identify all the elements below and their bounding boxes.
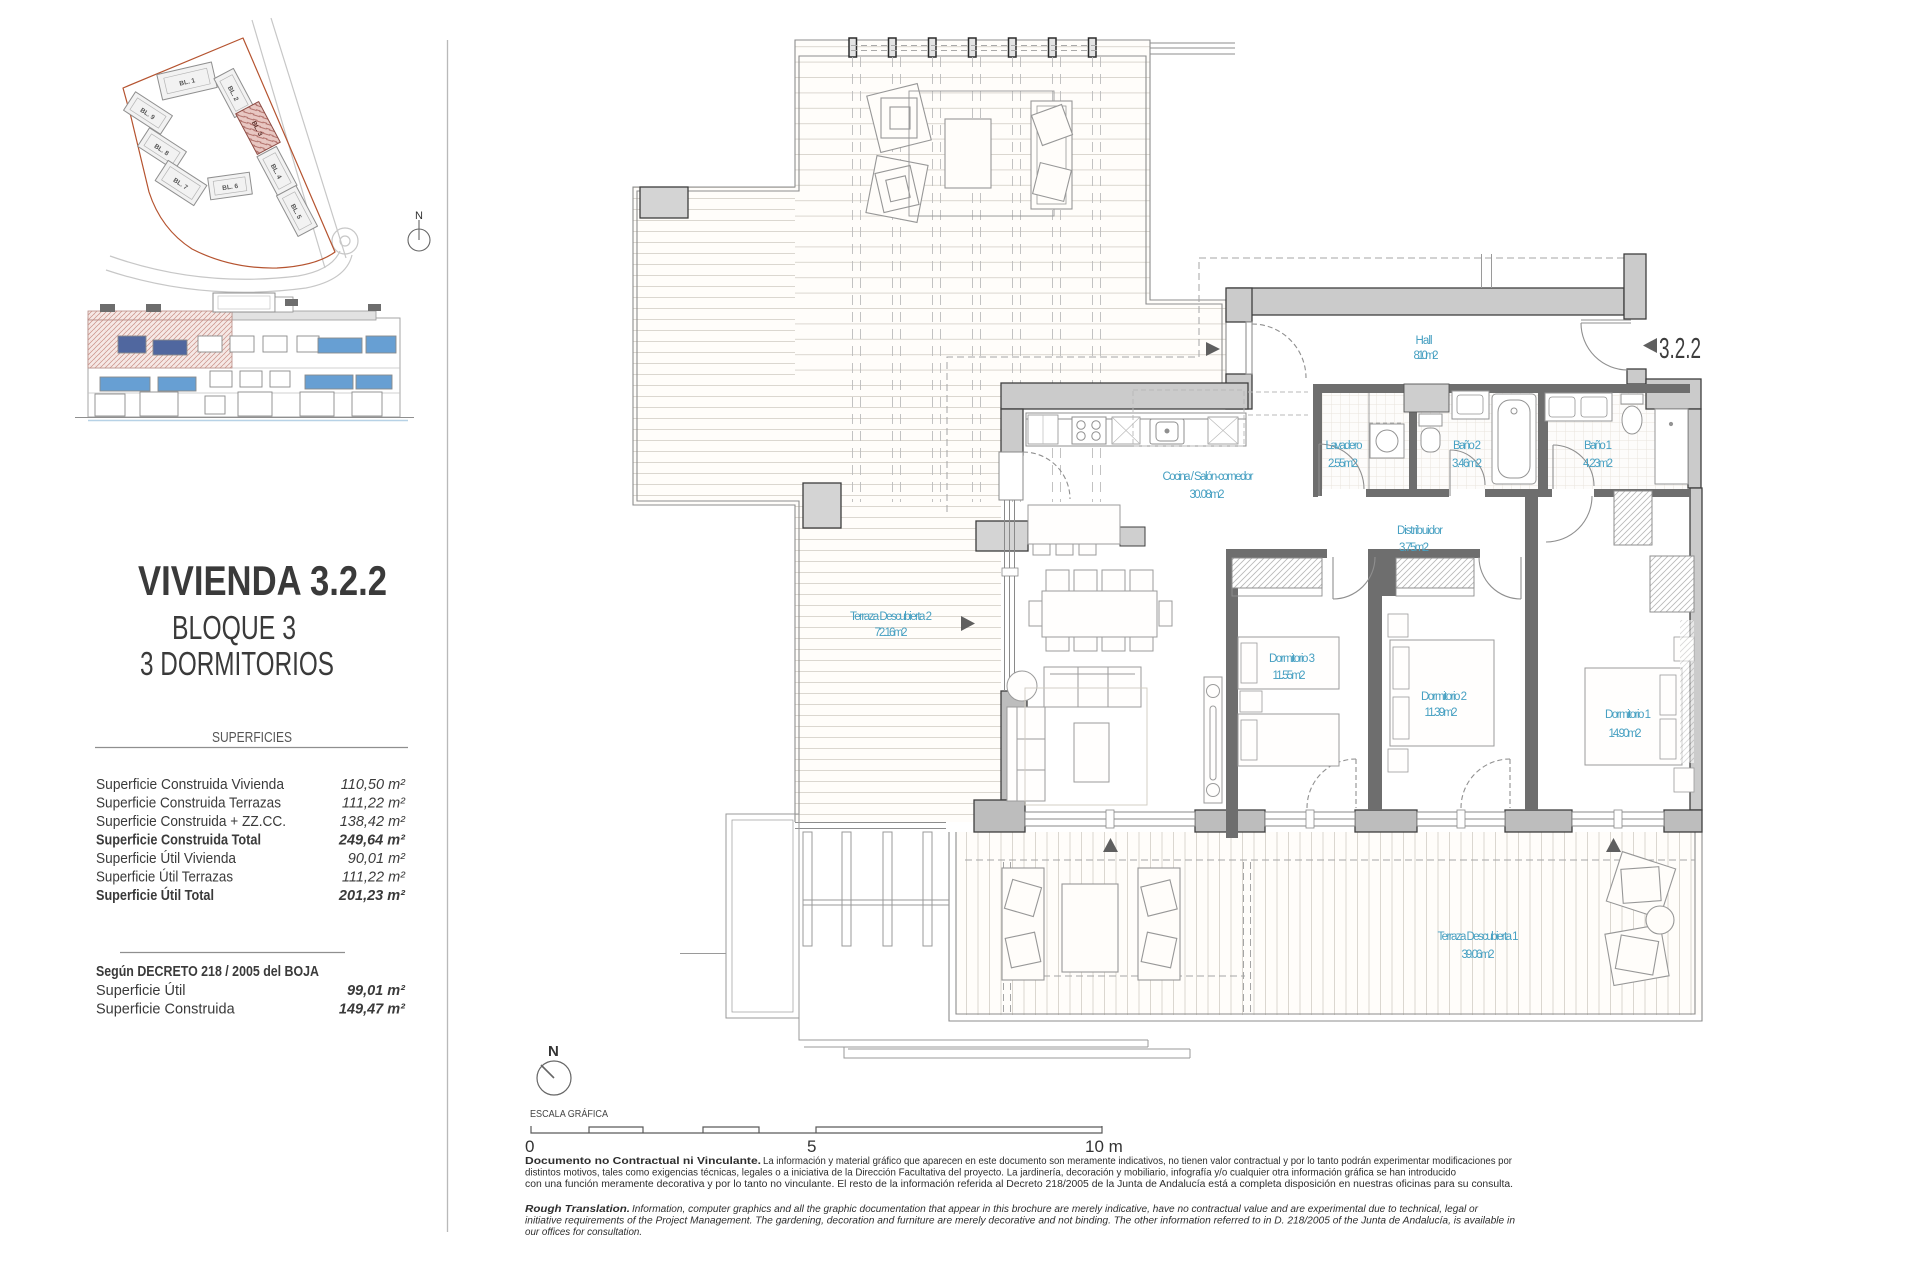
svg-text:Superficie Útil Vivienda: Superficie Útil Vivienda: [96, 850, 237, 867]
svg-text:Terraza Descubierta 2: Terraza Descubierta 2: [850, 611, 932, 623]
svg-text:N: N: [548, 1043, 559, 1060]
svg-text:La información y material gráf: La información y material gráfico que ap…: [763, 1156, 1513, 1167]
svg-text:Baño 1: Baño 1: [1584, 440, 1612, 452]
svg-text:3.2.2: 3.2.2: [1659, 333, 1701, 365]
svg-text:Dormitorio 1: Dormitorio 1: [1605, 709, 1651, 721]
svg-text:39.06m2: 39.06m2: [1462, 949, 1495, 961]
svg-text:149,47 m²: 149,47 m²: [339, 1002, 406, 1018]
svg-text:Terraza Descubierta 1: Terraza Descubierta 1: [1438, 931, 1519, 943]
svg-text:11.39m2: 11.39m2: [1425, 707, 1458, 719]
svg-text:Lavadero: Lavadero: [1326, 440, 1363, 452]
svg-text:5: 5: [807, 1137, 816, 1156]
svg-text:111,22 m²: 111,22 m²: [342, 870, 406, 886]
svg-text:138,42 m²: 138,42 m²: [340, 814, 406, 830]
svg-text:initiative requirements of the: initiative requirements of the Project M…: [525, 1216, 1515, 1227]
svg-text:Superficie Construida Total: Superficie Construida Total: [96, 833, 261, 849]
svg-text:Rough Translation.: Rough Translation.: [525, 1204, 630, 1215]
svg-text:8.10m2: 8.10m2: [1414, 350, 1439, 362]
svg-text:our offices for consultation.: our offices for consultation.: [525, 1227, 642, 1238]
svg-text:N: N: [415, 210, 423, 222]
svg-text:Superficie Construida: Superficie Construida: [96, 1002, 236, 1018]
svg-text:30.08m2: 30.08m2: [1190, 489, 1225, 501]
svg-text:Baño 2: Baño 2: [1453, 440, 1481, 452]
svg-text:110,50 m²: 110,50 m²: [341, 777, 406, 793]
svg-text:4.23m2: 4.23m2: [1583, 458, 1613, 470]
svg-text:con una función meramente deco: con una función meramente decorativa y p…: [525, 1179, 1513, 1190]
svg-text:11.55m2: 11.55m2: [1273, 670, 1306, 682]
svg-text:Superficie Construida Terrazas: Superficie Construida Terrazas: [96, 796, 281, 812]
svg-text:3 DORMITORIOS: 3 DORMITORIOS: [140, 645, 334, 682]
svg-text:Distribuidor: Distribuidor: [1397, 525, 1443, 537]
svg-text:90,01 m²: 90,01 m²: [348, 851, 406, 867]
svg-text:ESCALA GRÁFICA: ESCALA GRÁFICA: [530, 1107, 608, 1120]
svg-text:Dormitorio 2: Dormitorio 2: [1421, 691, 1467, 703]
svg-text:111,22 m²: 111,22 m²: [342, 796, 406, 812]
svg-text:Information, computer graphics: Information, computer graphics and all t…: [632, 1204, 1479, 1215]
svg-text:99,01 m²: 99,01 m²: [347, 983, 406, 999]
svg-text:VIVIENDA 3.2.2: VIVIENDA 3.2.2: [138, 557, 387, 604]
svg-text:Superficie Construida Vivienda: Superficie Construida Vivienda: [96, 777, 285, 793]
svg-text:3.46m2: 3.46m2: [1452, 458, 1482, 470]
svg-text:Superficie Útil: Superficie Útil: [96, 982, 185, 999]
svg-text:249,64 m²: 249,64 m²: [338, 833, 406, 849]
svg-text:Superficie Útil Total: Superficie Útil Total: [96, 886, 214, 904]
svg-text:10 m: 10 m: [1085, 1137, 1123, 1156]
svg-text:Superficie Construida + ZZ.CC.: Superficie Construida + ZZ.CC.: [96, 814, 286, 830]
svg-text:BLOQUE 3: BLOQUE 3: [172, 609, 296, 646]
svg-text:Según DECRETO 218 / 2005 del B: Según DECRETO 218 / 2005 del BOJA: [96, 964, 319, 980]
svg-text:SUPERFICIES: SUPERFICIES: [212, 729, 292, 746]
svg-text:Documento no Contractual ni Vi: Documento no Contractual ni Vinculante.: [525, 1156, 761, 1167]
svg-text:201,23 m²: 201,23 m²: [338, 888, 406, 904]
svg-text:3.75m2: 3.75m2: [1399, 542, 1429, 554]
svg-text:Hall: Hall: [1416, 335, 1433, 347]
svg-text:0: 0: [525, 1137, 534, 1156]
svg-text:Dormitorio 3: Dormitorio 3: [1269, 653, 1315, 665]
svg-text:2.55m2: 2.55m2: [1328, 458, 1358, 470]
svg-text:Cocina / Salón-comedor: Cocina / Salón-comedor: [1163, 471, 1254, 483]
svg-text:72.16m2: 72.16m2: [875, 627, 908, 639]
svg-text:distintos motivos, tales como: distintos motivos, tales como exigencias…: [525, 1168, 1457, 1179]
svg-text:14.90m2: 14.90m2: [1609, 728, 1642, 740]
svg-text:Superficie Útil Terrazas: Superficie Útil Terrazas: [96, 869, 233, 886]
